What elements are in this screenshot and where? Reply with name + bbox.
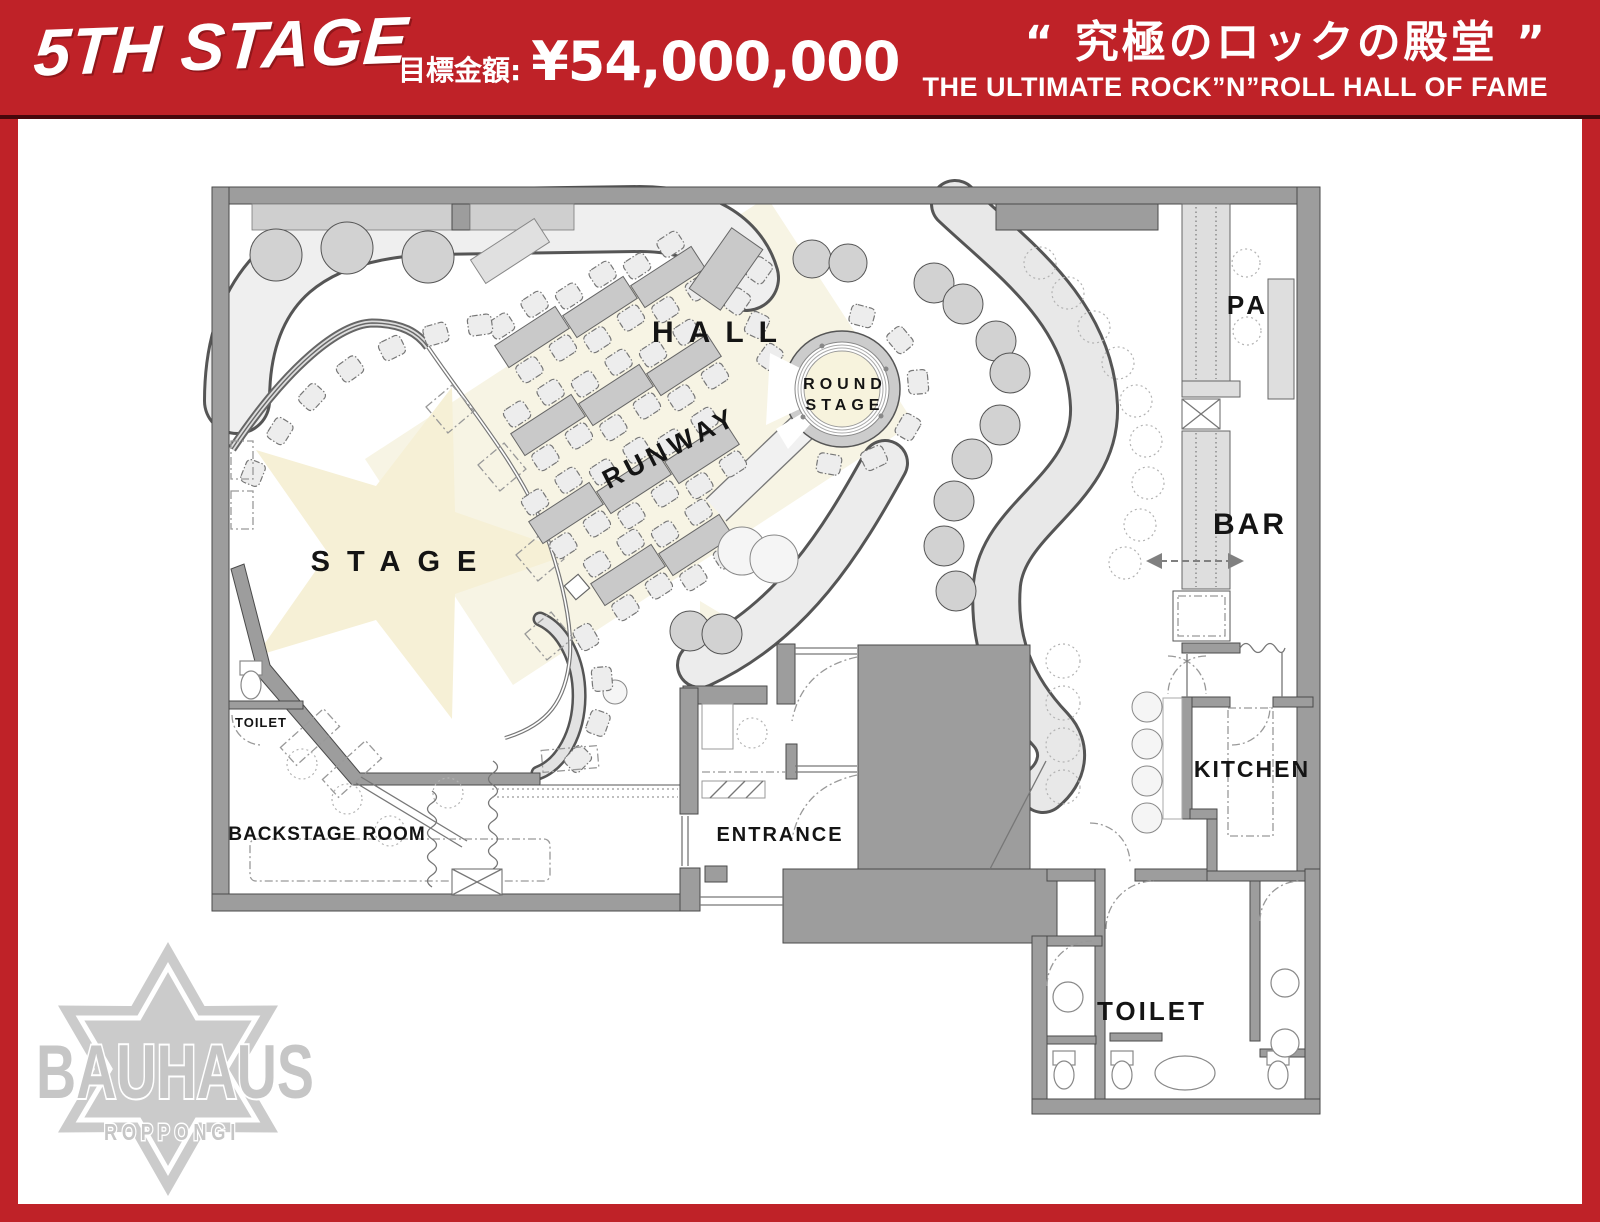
funding-goal: 目標金額: ¥54,000,000 xyxy=(398,30,899,93)
bar-pa-strip xyxy=(1146,204,1294,698)
goal-label: 目標金額: xyxy=(398,49,521,89)
toilet-label: TOILET xyxy=(1097,996,1207,1026)
backstage-label: BACKSTAGE ROOM xyxy=(228,824,425,845)
floor-plan: STAGE HALL RUNWAY ROUND STAGE PA BAR KIT… xyxy=(18,119,1582,1204)
bar-label: BAR xyxy=(1213,508,1287,541)
header-band: 5TH STAGE 目標金額: ¥54,000,000 “ 究極のロックの殿堂 … xyxy=(0,0,1600,115)
round-stage-label-1: ROUND xyxy=(803,376,887,393)
tagline: “ 究極のロックの殿堂 ” THE ULTIMATE ROCK”N”ROLL H… xyxy=(923,6,1548,103)
event-title: 5TH STAGE xyxy=(31,1,411,90)
toilet-small-label: TOILET xyxy=(235,715,287,730)
bauhaus-logo: BAUHAUS ROPPONGI xyxy=(36,942,314,1196)
hall-label: HALL xyxy=(652,316,792,349)
tagline-english: THE ULTIMATE ROCK”N”ROLL HALL OF FAME xyxy=(923,72,1548,103)
pa-label: PA xyxy=(1227,290,1269,320)
logo-location: ROPPONGI xyxy=(104,1119,240,1145)
tagline-japanese: “ 究極のロックの殿堂 ” xyxy=(923,6,1548,70)
kitchen-label: KITCHEN xyxy=(1194,756,1310,782)
stage-label: STAGE xyxy=(311,546,494,578)
round-stage-label-2: STAGE xyxy=(806,397,885,414)
goal-amount: ¥54,000,000 xyxy=(531,30,899,93)
logo-brand: BAUHAUS xyxy=(36,1030,314,1115)
plan-canvas: STAGE HALL RUNWAY ROUND STAGE PA BAR KIT… xyxy=(18,119,1582,1204)
entrance-label: ENTRANCE xyxy=(716,824,843,846)
